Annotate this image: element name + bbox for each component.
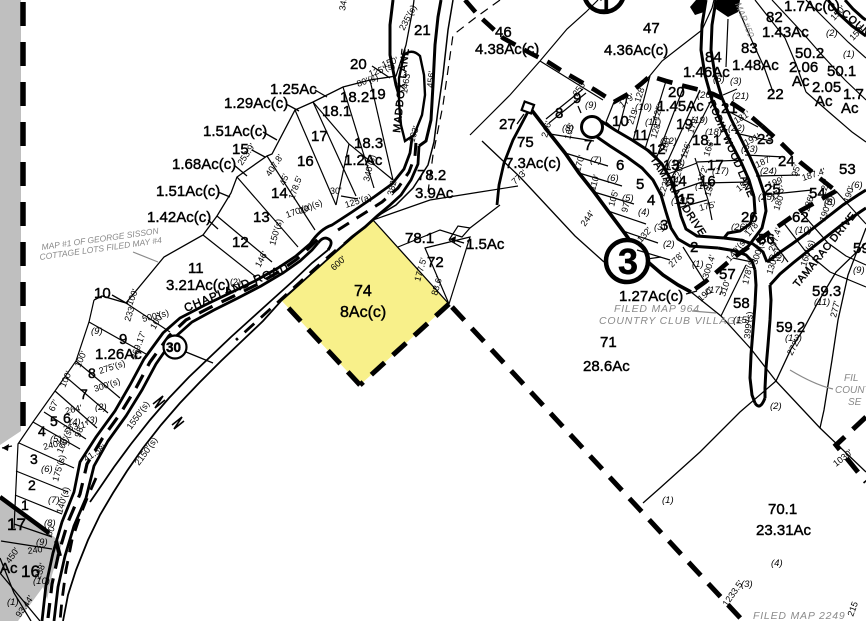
svg-text:71: 71 (600, 334, 617, 351)
svg-text:1.68Ac(c): 1.68Ac(c) (172, 156, 236, 173)
svg-text:74: 74 (354, 283, 372, 300)
svg-text:(1): (1) (7, 597, 19, 608)
svg-text:(7): (7) (590, 155, 602, 166)
svg-text:(2): (2) (770, 401, 782, 412)
svg-text:50.1: 50.1 (827, 63, 856, 80)
svg-text:(9): (9) (91, 326, 103, 337)
svg-text:47: 47 (643, 20, 660, 37)
svg-text:(10): (10) (795, 225, 812, 236)
svg-text:(4): (4) (69, 417, 81, 428)
svg-text:(12): (12) (660, 136, 677, 147)
svg-text:(4): (4) (638, 207, 650, 218)
svg-text:70.1: 70.1 (768, 501, 797, 518)
svg-text:(11): (11) (645, 117, 661, 128)
svg-text:75: 75 (517, 134, 534, 151)
svg-text:21: 21 (414, 22, 431, 39)
svg-text:(9): (9) (585, 100, 597, 111)
svg-text:2: 2 (28, 477, 36, 493)
svg-text:(26): (26) (731, 222, 748, 233)
svg-text:(16): (16) (695, 181, 712, 192)
svg-text:83: 83 (741, 40, 758, 57)
svg-text:2: 2 (690, 239, 698, 256)
svg-text:8: 8 (88, 365, 96, 381)
svg-text:456': 456' (425, 70, 437, 88)
svg-text:59: 59 (853, 240, 866, 257)
svg-text:(8): (8) (824, 197, 836, 208)
svg-text:28.6Ac: 28.6Ac (583, 358, 630, 375)
svg-text:(13): (13) (785, 333, 802, 344)
svg-text:(3): (3) (730, 76, 742, 87)
svg-text:COUNTRY: COUNTRY (835, 385, 866, 396)
svg-text:1: 1 (21, 497, 29, 513)
svg-text:(3): (3) (654, 222, 666, 233)
svg-text:(19): (19) (691, 115, 708, 126)
svg-text:17: 17 (7, 515, 26, 534)
svg-text:3.9Ac: 3.9Ac (415, 185, 454, 202)
svg-text:53: 53 (839, 161, 856, 178)
svg-text:1.43Ac: 1.43Ac (762, 24, 809, 41)
svg-text:(3): (3) (741, 579, 753, 590)
svg-text:Ac: Ac (792, 73, 810, 90)
svg-text:17: 17 (311, 128, 328, 145)
svg-text:12: 12 (232, 234, 249, 251)
svg-text:1.42Ac(c): 1.42Ac(c) (147, 209, 211, 226)
svg-text:1: 1 (599, 0, 612, 18)
svg-text:7.3Ac(c): 7.3Ac(c) (505, 155, 561, 172)
svg-text:(9): (9) (853, 265, 865, 276)
svg-text:Ac: Ac (815, 93, 833, 110)
svg-text:19: 19 (369, 86, 386, 103)
svg-text:(23): (23) (741, 144, 758, 155)
svg-text:(4): (4) (771, 558, 783, 569)
svg-text:(15): (15) (733, 315, 750, 326)
svg-text:(1): (1) (843, 49, 855, 60)
svg-text:18.1: 18.1 (322, 103, 351, 120)
svg-text:(8): (8) (44, 518, 56, 529)
svg-text:1.48Ac: 1.48Ac (732, 57, 779, 74)
svg-text:7: 7 (80, 386, 88, 402)
svg-text:(14): (14) (665, 175, 682, 186)
svg-text:58: 58 (733, 295, 750, 312)
svg-text:(12): (12) (768, 253, 785, 264)
svg-text:FILED MAP 964: FILED MAP 964 (614, 303, 700, 315)
svg-text:4.38Ac(c): 4.38Ac(c) (475, 41, 539, 58)
svg-text:(2): (2) (826, 28, 838, 39)
svg-text:(2): (2) (230, 277, 241, 287)
svg-text:18.3: 18.3 (354, 135, 383, 152)
svg-text:78.2: 78.2 (417, 167, 446, 184)
svg-text:(5): (5) (713, 74, 725, 85)
svg-text:3: 3 (30, 451, 38, 467)
svg-text:46: 46 (495, 24, 512, 41)
svg-text:(2): (2) (663, 239, 675, 250)
svg-text:(13): (13) (668, 158, 685, 169)
svg-text:(11): (11) (814, 297, 830, 308)
svg-text:1.51Ac(c): 1.51Ac(c) (156, 183, 220, 200)
svg-text:6: 6 (616, 157, 624, 174)
svg-text:5: 5 (636, 176, 644, 193)
svg-text:(2): (2) (95, 402, 107, 413)
svg-text:FIL: FIL (844, 373, 858, 384)
svg-text:27: 27 (499, 116, 516, 133)
svg-text:(17): (17) (706, 285, 723, 296)
svg-text:(5): (5) (50, 434, 62, 445)
svg-text:Ac: Ac (841, 100, 859, 117)
svg-text:8: 8 (555, 105, 563, 122)
svg-text:13: 13 (253, 209, 270, 226)
svg-text:22: 22 (767, 86, 784, 103)
svg-text:(22): (22) (728, 123, 745, 134)
svg-text:(1): (1) (692, 259, 704, 270)
svg-text:30': 30' (330, 186, 342, 196)
svg-text:(6): (6) (607, 173, 619, 184)
svg-text:10: 10 (94, 285, 111, 302)
svg-text:1.51Ac(c): 1.51Ac(c) (203, 123, 267, 140)
svg-text:(10): (10) (33, 576, 50, 587)
svg-text:COUNTRY CLUB VILLAGE: COUNTRY CLUB VILLAGE (599, 315, 744, 327)
svg-text:(6): (6) (851, 180, 863, 191)
svg-text:(25): (25) (758, 192, 775, 203)
svg-text:20: 20 (350, 56, 367, 73)
svg-text:7: 7 (584, 137, 592, 154)
svg-text:4.36Ac(c): 4.36Ac(c) (604, 42, 668, 59)
svg-text:4: 4 (38, 423, 46, 439)
svg-text:8Ac(c): 8Ac(c) (340, 304, 386, 321)
svg-text:(6): (6) (41, 464, 53, 475)
svg-text:14: 14 (271, 185, 288, 202)
svg-text:30: 30 (166, 340, 181, 355)
svg-text:(5): (5) (622, 193, 634, 204)
svg-text:1.29Ac(c): 1.29Ac(c) (224, 95, 288, 112)
svg-text:(10): (10) (635, 102, 652, 113)
svg-text:23.31Ac: 23.31Ac (756, 522, 812, 539)
svg-text:(3): (3) (86, 415, 98, 426)
svg-text:(9): (9) (36, 537, 48, 548)
svg-text:(17): (17) (712, 166, 729, 177)
svg-text:11: 11 (188, 260, 204, 277)
svg-text:(24): (24) (760, 166, 777, 177)
svg-text:FILED MAP 2249: FILED MAP 2249 (753, 610, 846, 621)
svg-text:3: 3 (618, 241, 638, 282)
svg-text:(15): (15) (671, 196, 688, 207)
svg-text:(1): (1) (662, 495, 674, 506)
svg-text:16: 16 (297, 153, 314, 170)
svg-text:(8): (8) (562, 123, 574, 134)
svg-text:1.2Ac: 1.2Ac (344, 152, 383, 169)
svg-text:(18): (18) (705, 127, 722, 138)
svg-text:(21): (21) (732, 91, 749, 102)
svg-text:78.1: 78.1 (405, 230, 434, 247)
svg-text:1.5Ac: 1.5Ac (466, 236, 505, 253)
svg-text:SE: SE (848, 397, 862, 408)
svg-text:72: 72 (427, 254, 444, 271)
svg-text:5: 5 (50, 413, 58, 429)
svg-text:(20): (20) (697, 90, 714, 101)
